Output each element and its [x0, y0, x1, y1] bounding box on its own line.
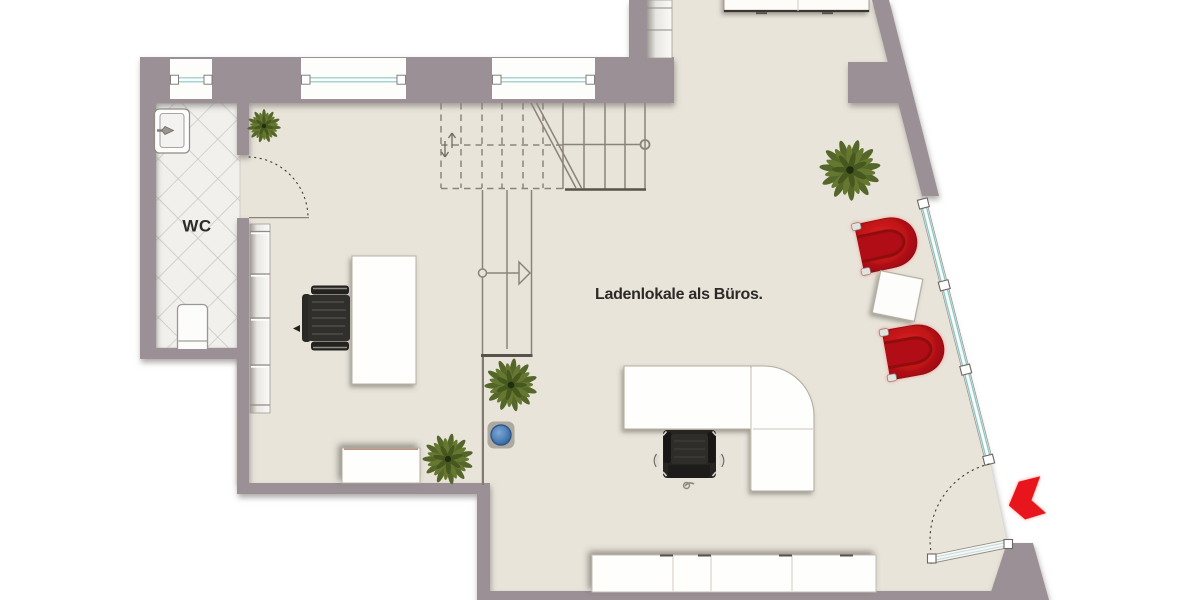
svg-text:Ladenlokale als Büros.: Ladenlokale als Büros.	[595, 286, 763, 303]
svg-text:WC: WC	[182, 217, 211, 236]
